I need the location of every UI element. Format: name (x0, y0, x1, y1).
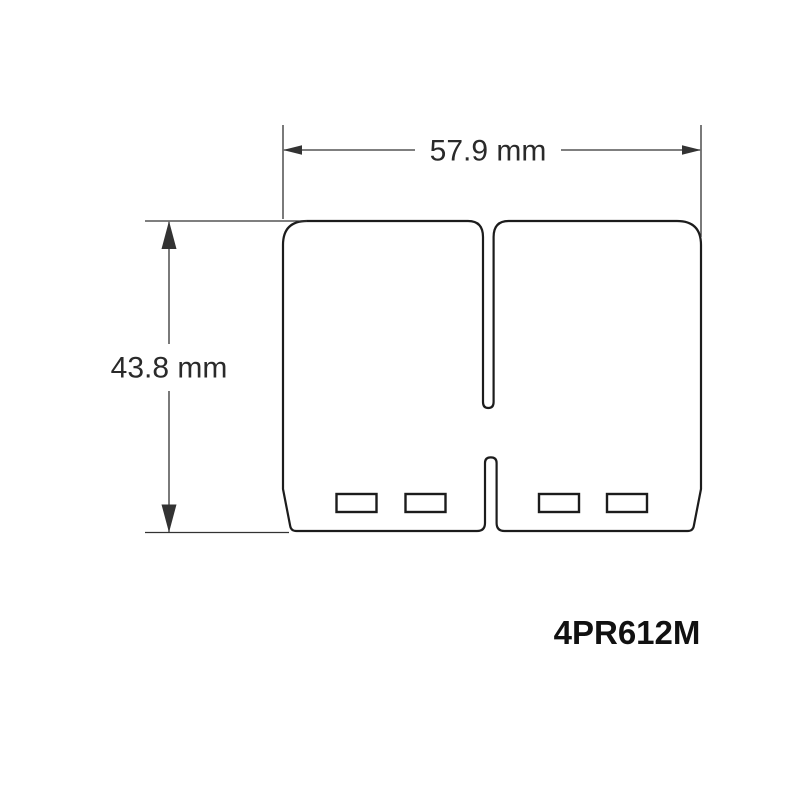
reed-petal-outline (283, 221, 701, 531)
arrowhead-right-icon (682, 145, 701, 155)
arrowhead-down-icon (162, 505, 177, 533)
part-number: 4PR612M (554, 614, 701, 651)
arrowhead-up-icon (162, 221, 177, 249)
alignment-slots (337, 494, 648, 512)
arrowhead-left-icon (283, 145, 302, 155)
alignment-slot (539, 494, 579, 512)
height-dimension: 43.8 mm (111, 221, 307, 533)
alignment-slot (337, 494, 377, 512)
reed-petal-drawing: 57.9 mm 43.8 mm 4PR612M (0, 0, 800, 800)
technical-drawing-page: 57.9 mm 43.8 mm 4PR612M (0, 0, 800, 800)
width-dimension-label: 57.9 mm (430, 135, 547, 168)
alignment-slot (406, 494, 446, 512)
alignment-slot (607, 494, 647, 512)
height-dimension-label: 43.8 mm (111, 352, 228, 385)
